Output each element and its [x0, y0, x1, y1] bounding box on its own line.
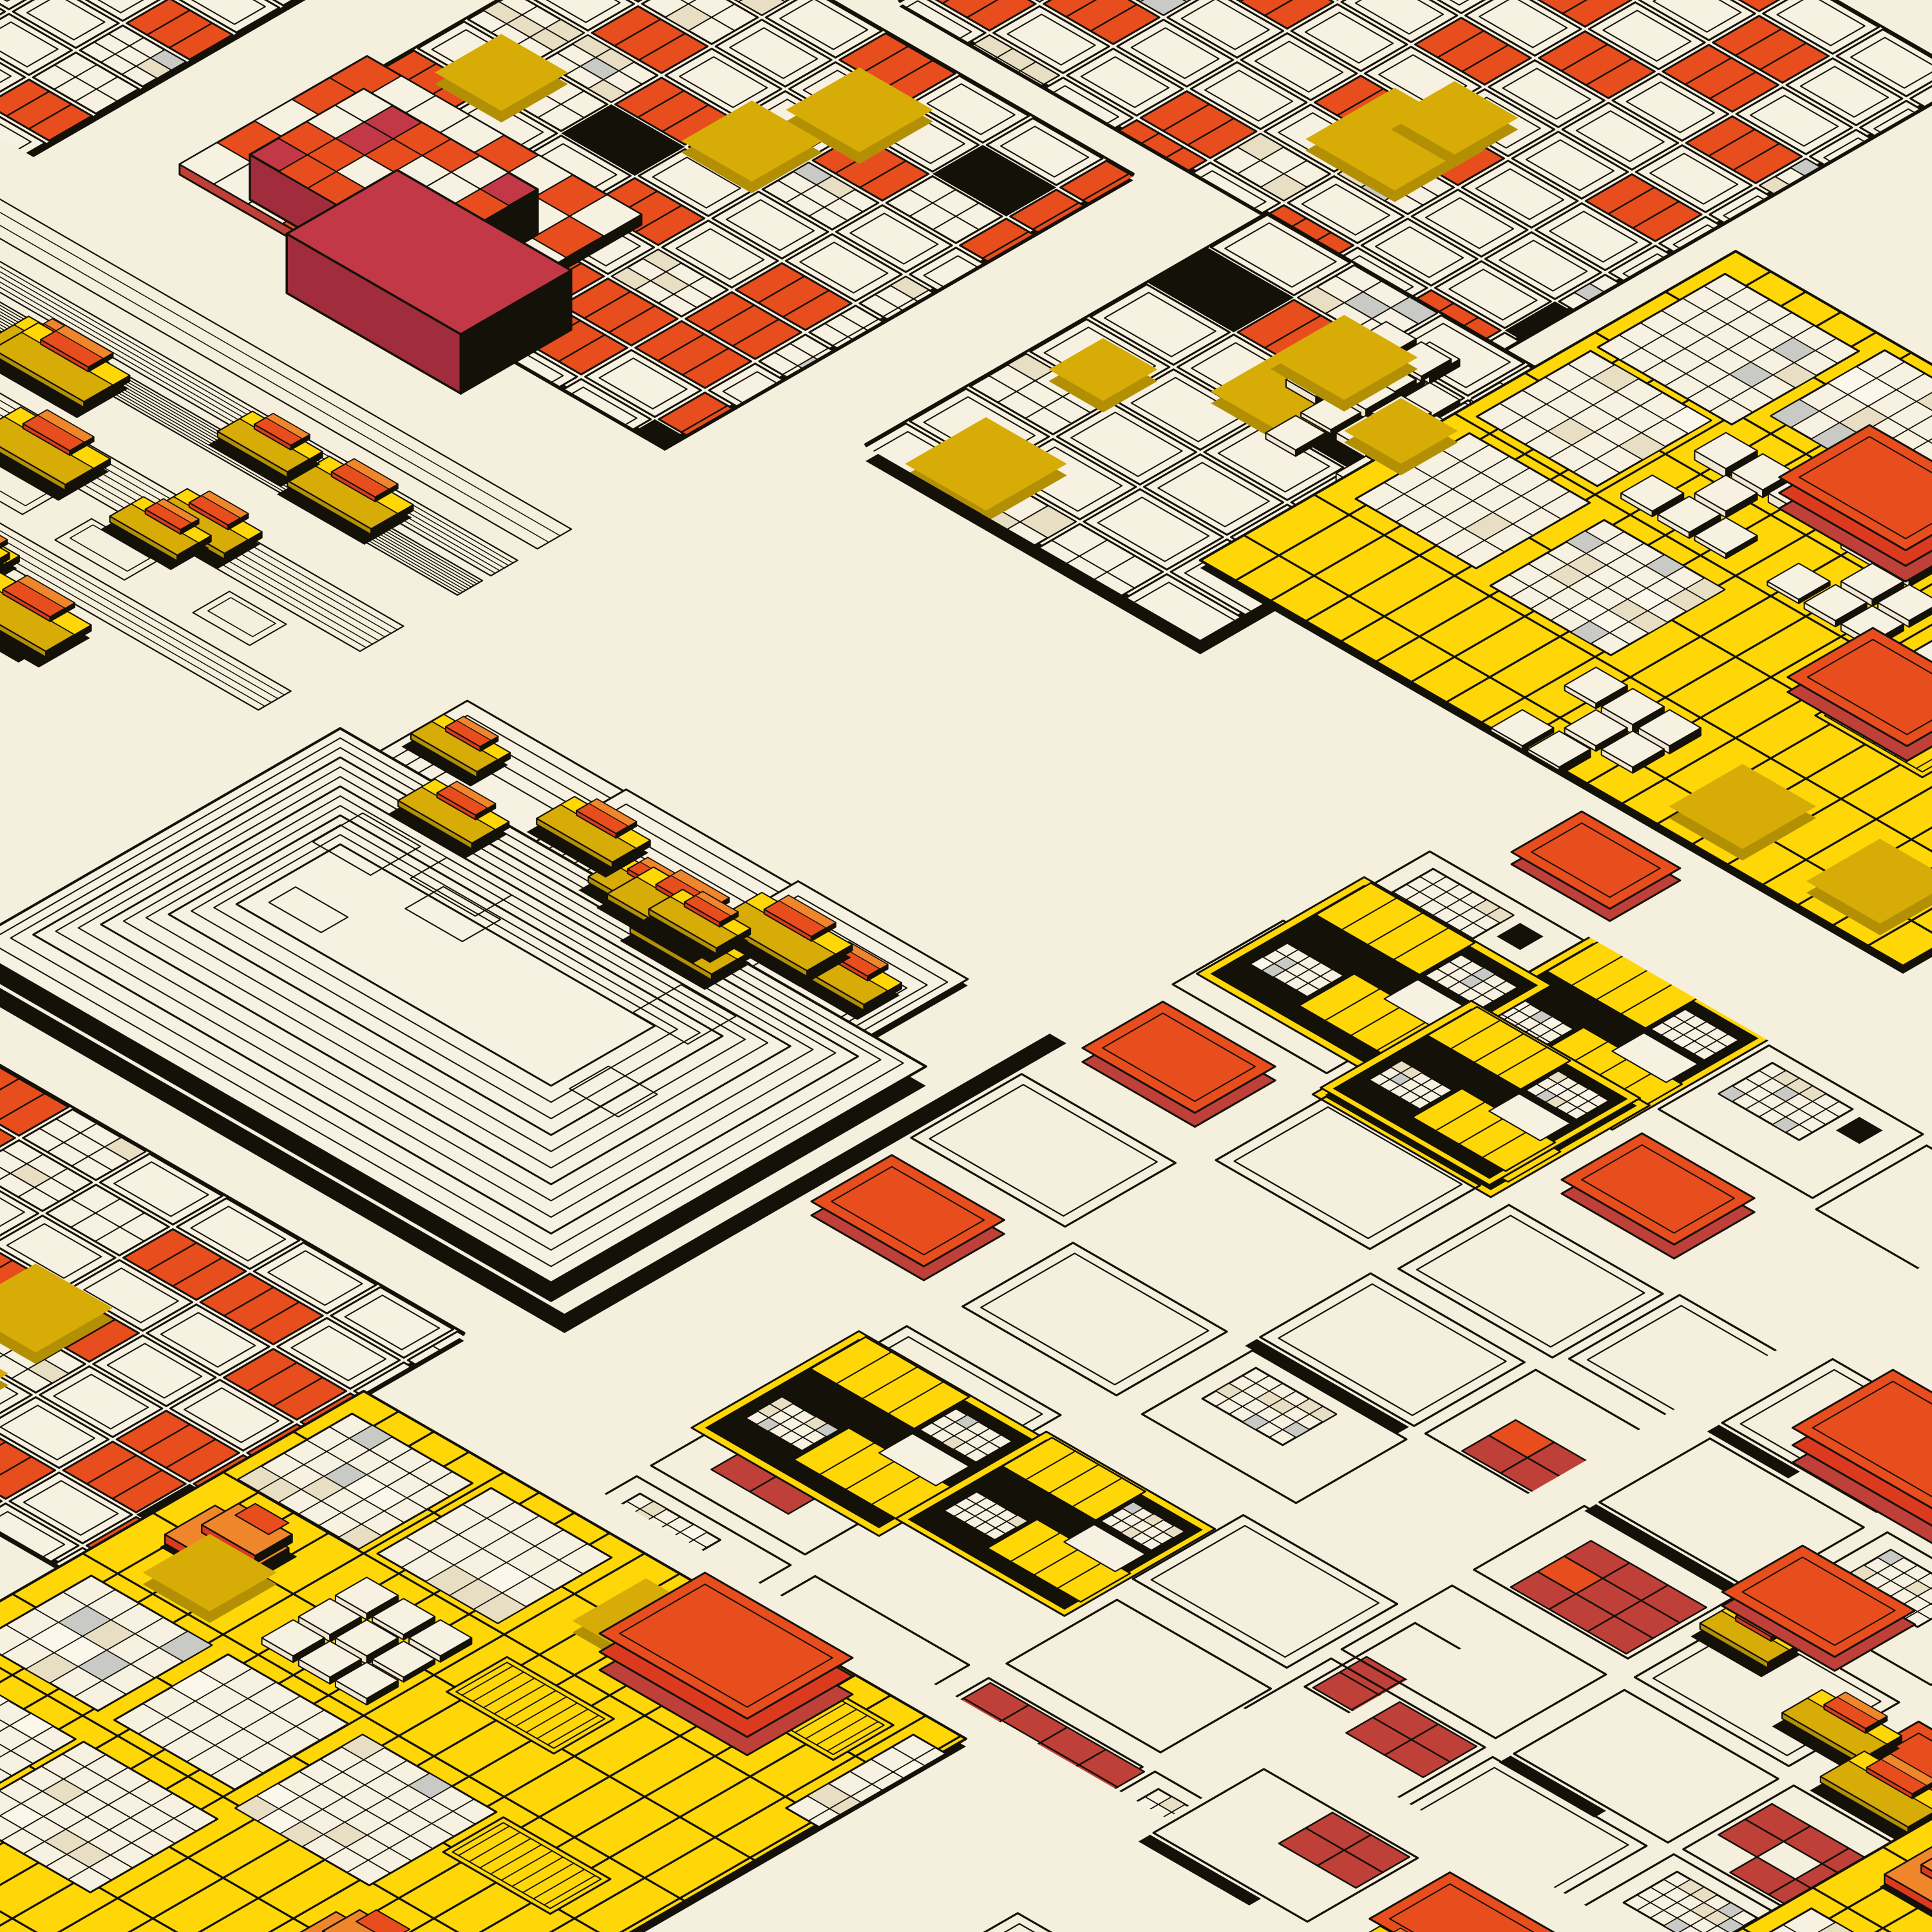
isometric-mondrian-city-canvas	[0, 0, 1932, 1932]
artwork-page: { "artwork": { "kind": "generative-isome…	[0, 0, 1932, 1932]
artwork-stage	[0, 0, 1932, 1932]
